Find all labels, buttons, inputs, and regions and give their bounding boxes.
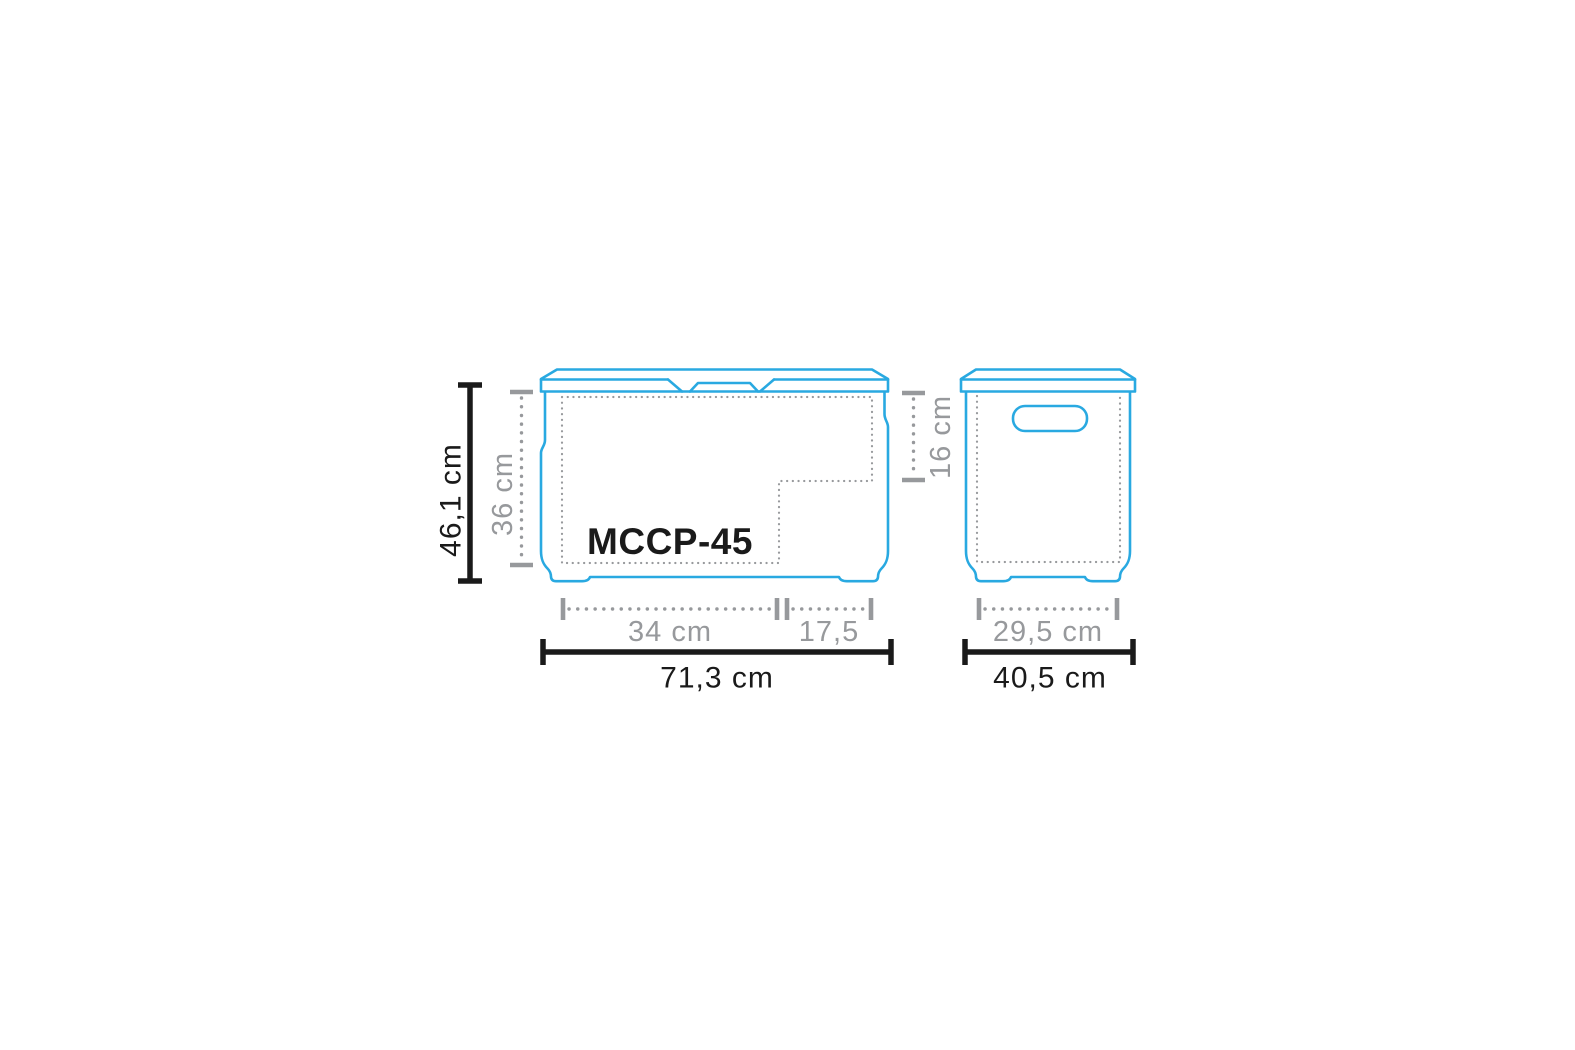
dim-inner-height: 36 cm (487, 392, 533, 565)
dim-step-height: 16 cm (902, 393, 957, 480)
side-view (961, 370, 1135, 582)
model-label: MCCP-45 (587, 521, 753, 562)
dim-label-inner-depth: 29,5 cm (993, 616, 1103, 648)
dim-label-overall-width: 71,3 cm (660, 662, 774, 695)
dim-step-width: 17,5 (787, 598, 871, 648)
dim-label-overall-height: 46,1 cm (435, 443, 468, 557)
dim-inner-depth: 29,5 cm (979, 598, 1117, 648)
side-body-outline (966, 391, 1130, 581)
dim-label-inner-width: 34 cm (628, 616, 712, 648)
dim-label-step-width: 17,5 (799, 616, 859, 648)
dim-label-inner-height: 36 cm (487, 452, 519, 536)
front-view: MCCP-45 (541, 370, 888, 582)
dim-inner-width: 34 cm (563, 598, 777, 648)
dim-overall-height: 46,1 cm (435, 385, 483, 581)
dimension-diagram-page: MCCP-45 46,1 cm 36 cm (0, 0, 1575, 1050)
dim-label-step-height: 16 cm (925, 395, 957, 479)
dim-label-overall-depth: 40,5 cm (993, 662, 1107, 695)
cooler-dimension-diagram: MCCP-45 46,1 cm 36 cm (0, 0, 1575, 1050)
